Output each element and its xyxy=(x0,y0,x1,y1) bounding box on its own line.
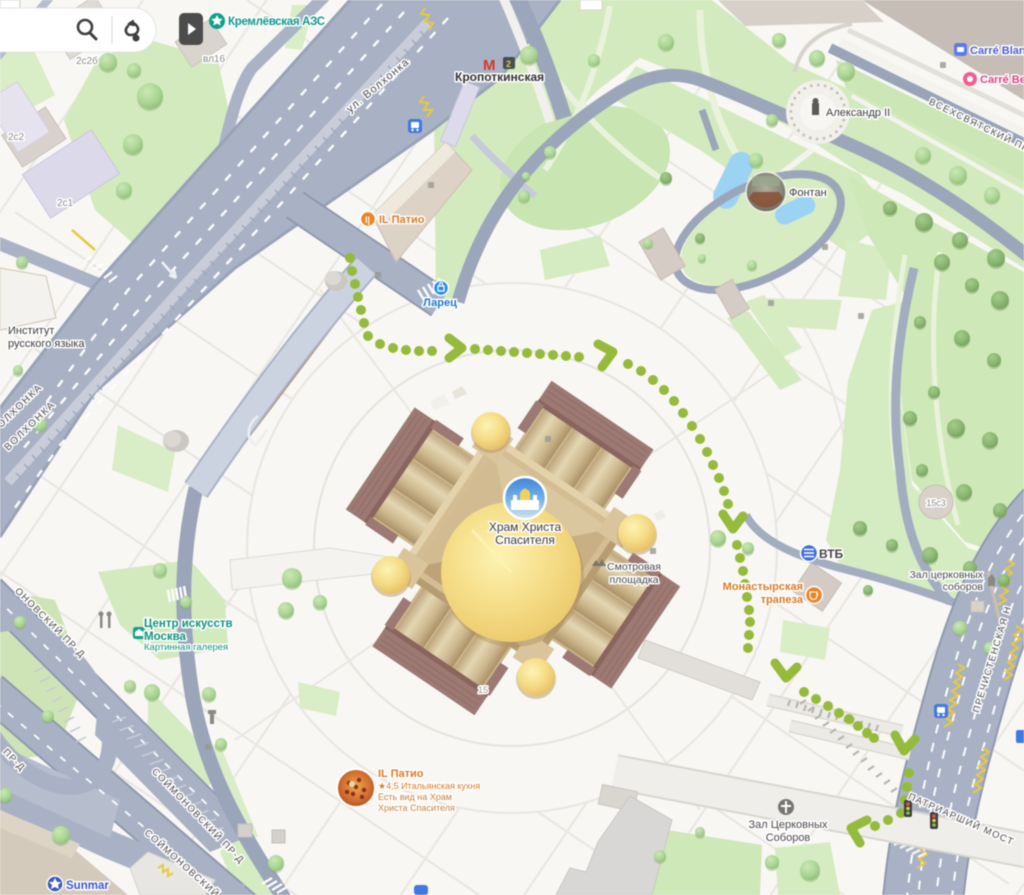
svg-text:Зал церковных: Зал церковных xyxy=(909,569,983,581)
svg-text:Монастырская: Монастырская xyxy=(723,581,803,593)
svg-text:2с2: 2с2 xyxy=(8,132,25,143)
svg-text:2: 2 xyxy=(506,59,511,69)
svg-text:Sunmar: Sunmar xyxy=(66,880,109,892)
svg-text:Фонтан: Фонтан xyxy=(789,187,827,199)
svg-text:трапеза: трапеза xyxy=(761,594,804,606)
svg-text:Христа Спасителя: Христа Спасителя xyxy=(378,803,455,813)
svg-text:Carré Be: Carré Be xyxy=(980,74,1024,86)
svg-text:Ларец: Ларец xyxy=(423,297,457,309)
svg-text:соборов: соборов xyxy=(943,581,984,593)
svg-text:Carré Blan: Carré Blan xyxy=(970,45,1024,57)
svg-text:Смотровая: Смотровая xyxy=(607,561,661,573)
svg-text:2с1: 2с1 xyxy=(57,198,74,209)
svg-text:русского языка: русского языка xyxy=(8,338,85,350)
svg-text:IL Патио: IL Патио xyxy=(379,214,425,226)
svg-text:15: 15 xyxy=(478,685,488,695)
svg-text:15с3: 15с3 xyxy=(926,498,946,508)
svg-text:Александр II: Александр II xyxy=(826,107,890,119)
svg-text:Храм Христа: Храм Христа xyxy=(489,520,562,534)
svg-text:2с2б: 2с2б xyxy=(76,55,98,67)
svg-text:вл16: вл16 xyxy=(203,54,225,65)
svg-text:Кропоткинская: Кропоткинская xyxy=(455,70,544,84)
svg-text:площадка: площадка xyxy=(609,574,658,586)
svg-text:Зал Церковных: Зал Церковных xyxy=(749,819,828,831)
svg-text:Институт: Институт xyxy=(8,325,54,337)
svg-text:ВТБ: ВТБ xyxy=(819,547,844,561)
svg-text:Спасителя: Спасителя xyxy=(495,533,555,547)
svg-text:Картинная галерея: Картинная галерея xyxy=(144,642,228,653)
svg-text:l|: l| xyxy=(365,215,370,225)
svg-text:Есть вид на Храм: Есть вид на Храм xyxy=(378,792,452,802)
svg-text:Кремлёвская АЗС: Кремлёвская АЗС xyxy=(228,16,325,28)
svg-text:IL Патио: IL Патио xyxy=(378,768,424,780)
svg-text:Центр искусств: Центр искусств xyxy=(144,618,233,630)
svg-text:★4,5 Итальянская кухня: ★4,5 Итальянская кухня xyxy=(378,781,480,791)
svg-text:Соборов: Соборов xyxy=(766,832,811,844)
